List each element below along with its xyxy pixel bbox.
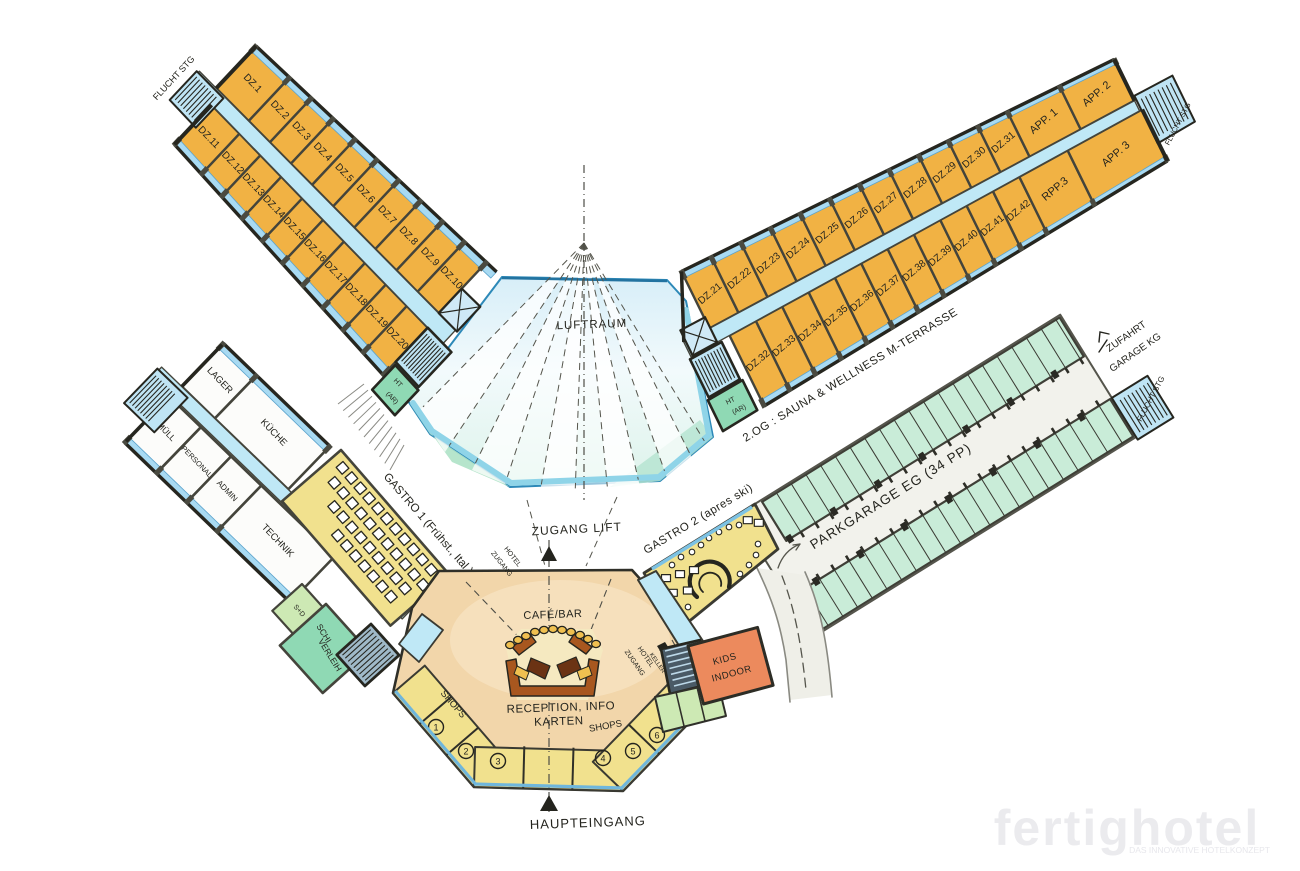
svg-text:5: 5 [630,747,635,757]
svg-text:LUFTRAUM: LUFTRAUM [556,318,627,332]
svg-text:DAS INNOVATIVE HOTELKONZEPT: DAS INNOVATIVE HOTELKONZEPT [1129,845,1270,855]
svg-text:1: 1 [433,723,438,733]
svg-text:2: 2 [463,747,468,757]
svg-text:KARTEN: KARTEN [534,715,584,729]
svg-text:6: 6 [654,731,659,741]
svg-text:3: 3 [495,757,500,767]
svg-text:4: 4 [600,754,605,764]
svg-text:CAFÉ/BAR: CAFÉ/BAR [523,607,582,622]
